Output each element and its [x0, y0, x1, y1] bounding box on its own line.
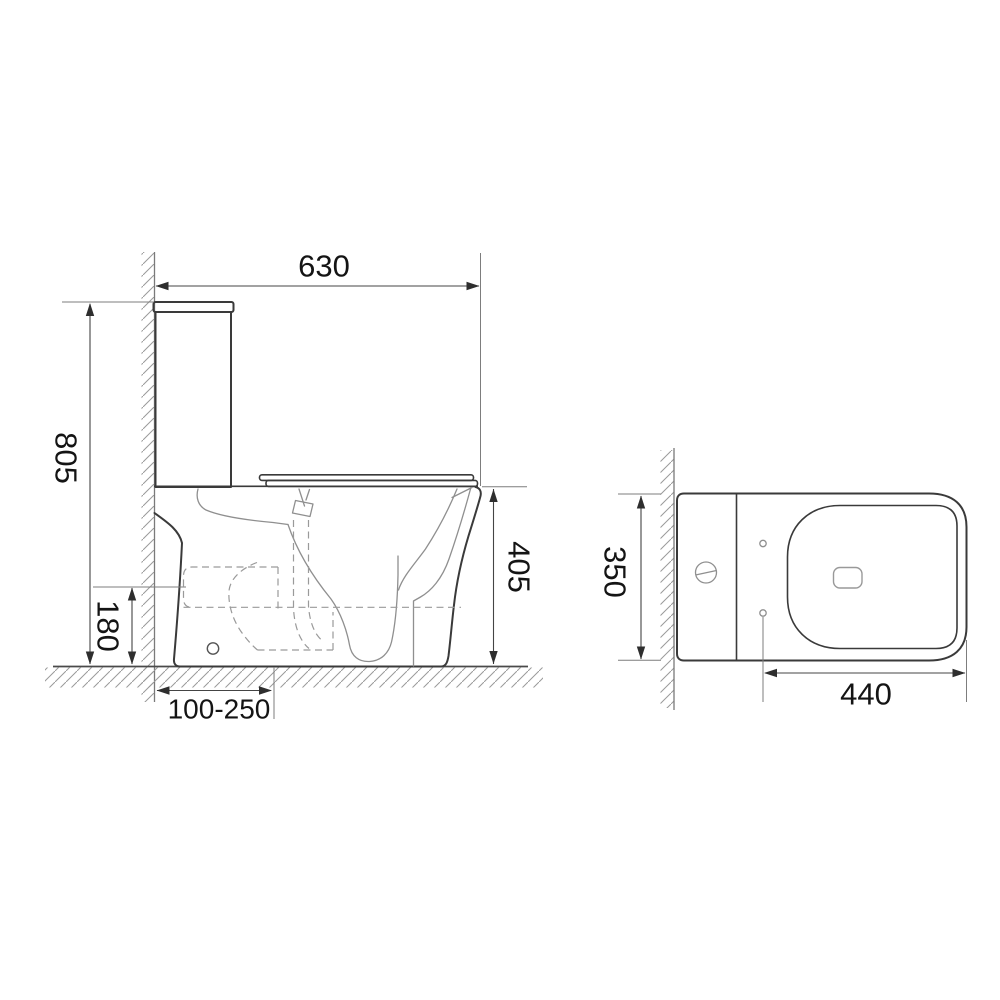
wall-hatch [142, 252, 155, 702]
fixing-bolt-hole [207, 643, 218, 654]
hinge-hole-top [760, 540, 766, 546]
dimension-overall-depth: 630 [156, 249, 481, 487]
bowl-plan-outline [677, 494, 967, 661]
arrowhead-right [953, 669, 966, 677]
arrowhead-down [128, 652, 136, 665]
seat-opening-outline [788, 506, 958, 649]
arrowhead-left [156, 282, 169, 290]
overflow-tube-sketch [293, 489, 314, 517]
flush-button [696, 562, 717, 583]
arrowhead-down [489, 651, 497, 664]
seat-lid [260, 475, 474, 481]
dim-label-180: 180 [91, 600, 126, 652]
wall-hatch [661, 450, 675, 708]
dimension-rim-height: 405 [482, 487, 537, 664]
dim-label-630: 630 [298, 249, 350, 284]
trap-channel-right-dashed [309, 520, 322, 640]
rim-shelf-sketch [197, 489, 288, 525]
arrowhead-up [489, 489, 497, 502]
dimension-bowl-length: 440 [763, 617, 967, 712]
bowl-sump-sketch [288, 525, 398, 662]
arrowhead-up [128, 588, 136, 601]
hinge-hole-bottom [760, 610, 766, 616]
dim-label-805: 805 [49, 432, 84, 484]
trap-outlet-dashed [258, 612, 334, 650]
cistern-lid [154, 302, 234, 312]
technical-drawing: 630 805 180 405 [0, 0, 1000, 1000]
arrowhead-down [86, 652, 94, 665]
dimension-overall-width: 350 [598, 494, 662, 660]
arrowhead-right [467, 282, 480, 290]
arrowhead-up [637, 496, 645, 509]
sump-outlet-mark [834, 568, 863, 589]
drawing-page: 630 805 180 405 [0, 0, 1000, 1000]
trap-channel-left-dashed [294, 520, 310, 649]
cistern-tank [156, 312, 232, 487]
top-view: 350 440 [598, 448, 967, 712]
arrowhead-down [637, 647, 645, 660]
dim-label-350: 350 [598, 546, 633, 598]
arrowhead-up [86, 303, 94, 316]
bowl-inner-front-sketch [399, 489, 458, 590]
arrowhead-left [764, 669, 777, 677]
side-view: 630 805 180 405 [45, 249, 543, 725]
trap-box-dashed [184, 567, 279, 607]
dim-label-405: 405 [502, 541, 537, 593]
bowl-exterior-profile [155, 487, 481, 667]
dim-label-100-250: 100-250 [168, 694, 271, 725]
floor-hatch [45, 668, 543, 688]
trap-bend-dashed [229, 563, 258, 651]
dimension-outlet-height: 180 [91, 587, 187, 665]
bowl-front-wall-sketch [414, 489, 471, 666]
dim-label-440: 440 [840, 677, 892, 712]
